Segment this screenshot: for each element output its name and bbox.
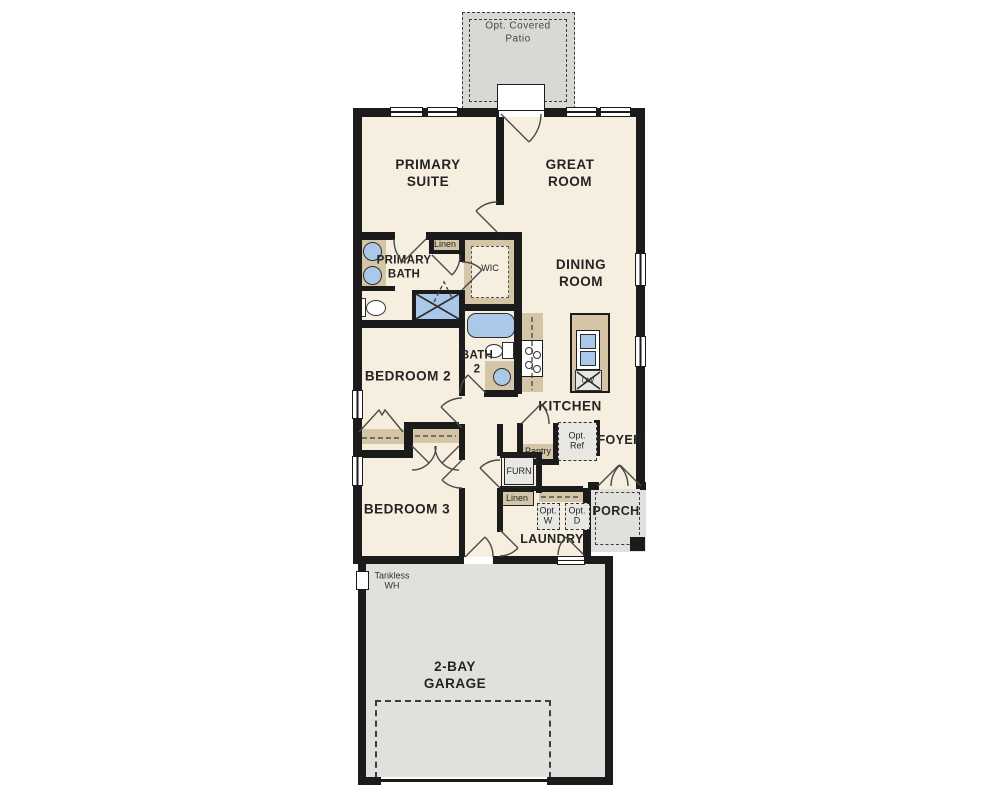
great-room-label: GREAT ROOM	[546, 157, 595, 191]
wall-segment	[497, 488, 503, 532]
linen-upper-label: Linen	[434, 239, 456, 249]
wall-segment	[496, 108, 504, 205]
wall-segment	[411, 422, 459, 429]
furnace-label: FURN	[507, 466, 532, 476]
window	[635, 253, 646, 286]
wall-segment	[353, 320, 465, 328]
wall-segment	[461, 304, 520, 311]
wall-segment	[640, 482, 646, 490]
bedroom2-label: BEDROOM 2	[365, 369, 451, 386]
bath2-toilet-tank	[502, 342, 514, 359]
tankless-water-heater	[356, 571, 369, 590]
wall-segment	[353, 286, 395, 291]
garage-door-line	[375, 779, 552, 782]
bedroom2-closet-shelf	[359, 429, 404, 444]
wall-segment	[353, 108, 362, 564]
opt-dryer-label: Opt. D	[568, 506, 585, 527]
garage-entry-opening	[464, 557, 492, 564]
wall-segment	[605, 564, 613, 785]
pantry-label: Pantry	[525, 446, 551, 456]
burner-2	[533, 351, 541, 359]
patio-door-step	[497, 84, 545, 111]
wall-segment	[459, 424, 465, 460]
wall-segment	[429, 250, 462, 254]
island-sink-basin-1	[580, 334, 596, 349]
wall-segment	[497, 424, 503, 456]
kitchen-label: KITCHEN	[538, 399, 602, 416]
window	[600, 107, 631, 117]
bedroom3-label: BEDROOM 3	[364, 502, 450, 519]
window	[557, 556, 585, 565]
burner-3	[525, 361, 533, 369]
window	[352, 456, 363, 486]
wall-segment	[459, 488, 465, 557]
window	[427, 107, 458, 117]
wall-segment	[493, 556, 559, 564]
burner-1	[525, 347, 533, 355]
dining-room-label: DINING ROOM	[556, 257, 606, 291]
bath2-label: BATH 2	[461, 349, 493, 378]
wall-segment	[547, 777, 613, 785]
washer-dryer-shelf	[539, 492, 583, 502]
window	[352, 390, 363, 419]
wall-segment	[584, 556, 613, 564]
wall-segment	[358, 564, 366, 785]
window	[566, 107, 597, 117]
window	[635, 336, 646, 367]
wall-segment	[514, 240, 522, 394]
foyer-label: FOYER	[597, 433, 642, 449]
opt-washer-label: Opt. W	[539, 506, 556, 527]
wall-segment	[353, 232, 395, 240]
burner-4	[533, 365, 541, 373]
wall-segment	[459, 232, 465, 262]
laundry-label: LAUNDRY	[520, 532, 583, 548]
linen-lower-label: Linen	[506, 493, 528, 503]
bath2-sink	[493, 368, 511, 386]
opt-ref-label: Opt. Ref	[568, 431, 585, 452]
wall-segment	[353, 556, 464, 564]
wic-label: WIC	[481, 263, 499, 273]
dishwasher-label: DW	[581, 375, 596, 384]
primary-bath-label: PRIMARY BATH	[377, 254, 432, 283]
porch-post	[630, 537, 645, 551]
island-sink-basin-2	[580, 351, 596, 366]
tankless-label: Tankless WH	[374, 571, 409, 592]
porch-label: PORCH	[592, 504, 639, 520]
wall-segment	[484, 390, 518, 397]
primary-shower	[412, 290, 463, 323]
bedroom3-closet-shelf	[413, 429, 459, 443]
wall-segment	[537, 486, 583, 492]
primary-toilet-bowl	[366, 300, 386, 316]
window	[390, 107, 423, 117]
bath2-tub	[467, 313, 515, 338]
floor-plan: Opt. Covered Patio PRIMARY SUITE GREAT R…	[0, 0, 1000, 800]
patio-label: Opt. Covered Patio	[485, 21, 550, 46]
garage-door-outline	[375, 700, 551, 778]
wall-segment	[500, 486, 542, 491]
primary-suite-label: PRIMARY SUITE	[395, 157, 460, 191]
wall-segment	[636, 108, 645, 489]
garage-label: 2-BAY GARAGE	[424, 659, 486, 693]
